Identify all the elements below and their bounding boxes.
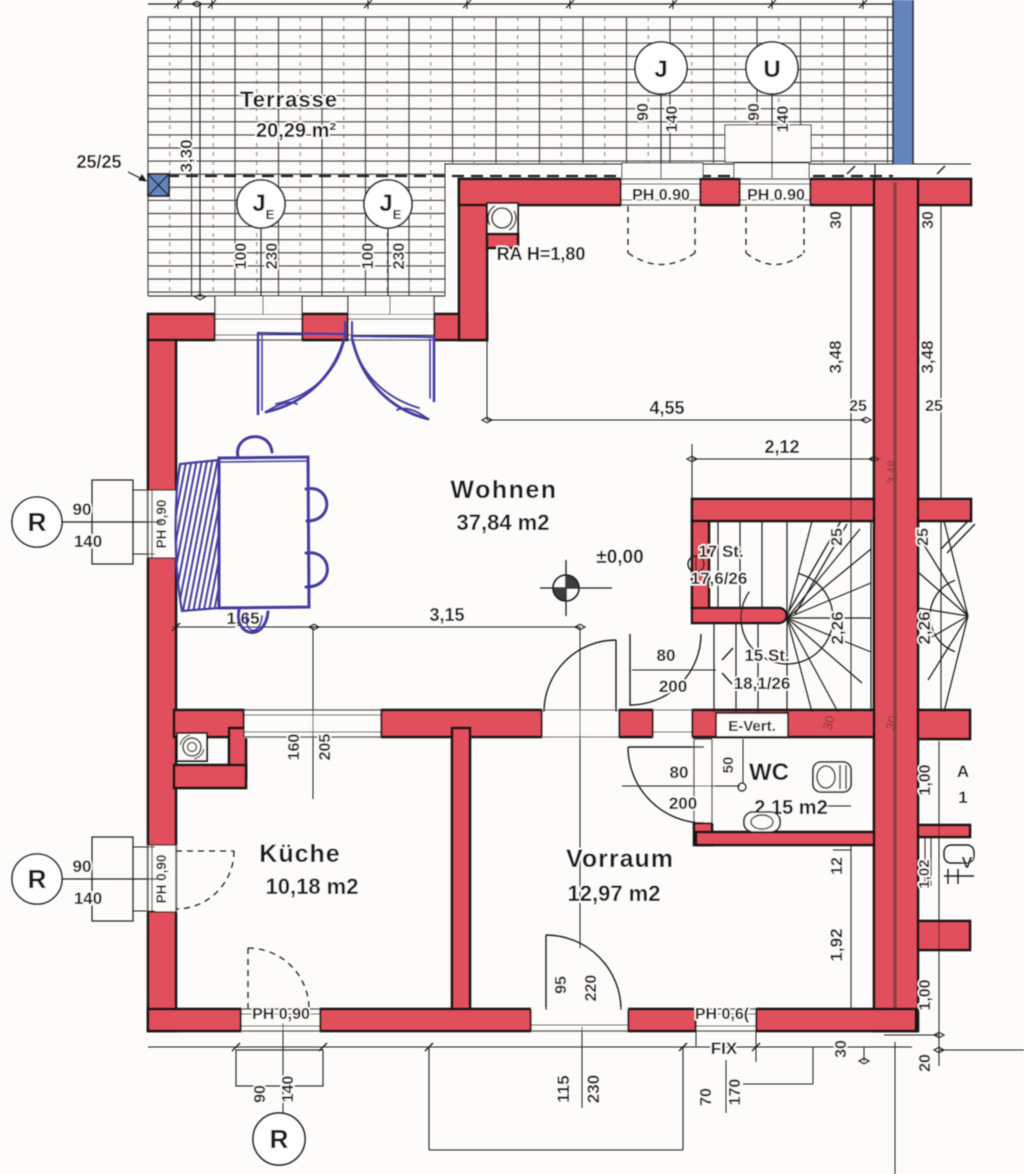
svg-text:1,00: 1,00 (917, 764, 934, 795)
svg-text:30: 30 (828, 211, 845, 229)
svg-text:3,48: 3,48 (885, 460, 899, 484)
svg-text:30: 30 (920, 211, 937, 229)
svg-text:J: J (252, 190, 265, 217)
svg-text:90: 90 (73, 500, 92, 519)
svg-text:1,00: 1,00 (917, 979, 934, 1010)
svg-text:12: 12 (829, 857, 846, 875)
svg-text:1,02: 1,02 (916, 859, 933, 888)
svg-text:Wohnen: Wohnen (450, 476, 557, 504)
svg-text:20: 20 (917, 1054, 934, 1072)
svg-text:R: R (270, 1124, 289, 1154)
svg-text:2,12: 2,12 (764, 437, 799, 457)
svg-text:90: 90 (73, 857, 92, 876)
svg-text:Küche: Küche (259, 840, 340, 868)
svg-text:160: 160 (286, 734, 303, 761)
svg-text:70: 70 (698, 1088, 715, 1106)
svg-text:220: 220 (583, 975, 600, 1002)
svg-text:20,29 m²: 20,29 m² (256, 120, 336, 142)
svg-text:100: 100 (360, 243, 377, 270)
svg-text:15 St.: 15 St. (744, 646, 789, 665)
svg-text:200: 200 (669, 794, 697, 813)
svg-text:115: 115 (554, 1075, 573, 1102)
svg-text:140: 140 (280, 1076, 297, 1103)
svg-text:R: R (28, 507, 47, 537)
svg-text:37,84 m2: 37,84 m2 (457, 510, 550, 535)
svg-text:12,97 m2: 12,97 m2 (568, 881, 661, 906)
svg-text:80: 80 (657, 646, 676, 665)
svg-text:FIX: FIX (711, 1039, 738, 1058)
svg-text:PH 0.90: PH 0.90 (747, 187, 805, 204)
svg-text:E: E (393, 207, 402, 222)
svg-text:10,18 m2: 10,18 m2 (266, 874, 359, 899)
svg-text:230: 230 (391, 243, 408, 270)
svg-text:80: 80 (670, 763, 689, 782)
svg-text:3,15: 3,15 (429, 605, 464, 625)
svg-text:1,65: 1,65 (226, 609, 259, 628)
svg-text:E-Vert.: E-Vert. (728, 718, 776, 735)
svg-text:140: 140 (74, 532, 102, 551)
svg-text:230: 230 (264, 243, 281, 270)
svg-text:18,1/26: 18,1/26 (734, 674, 791, 693)
svg-text:RA H=1,80: RA H=1,80 (497, 244, 586, 264)
svg-text:J: J (654, 56, 667, 83)
svg-text:200: 200 (659, 677, 687, 696)
svg-text:170: 170 (727, 1079, 744, 1106)
svg-text:25/25: 25/25 (76, 152, 121, 172)
svg-text:PH 0.90: PH 0.90 (632, 187, 690, 204)
svg-text:PH 0,90: PH 0,90 (252, 1006, 310, 1023)
svg-text:R: R (28, 864, 47, 894)
svg-text:230: 230 (584, 1075, 603, 1103)
svg-text:25: 25 (915, 528, 932, 546)
svg-text:140: 140 (74, 889, 102, 908)
svg-text:3,30: 3,30 (177, 139, 196, 172)
svg-text:30: 30 (833, 1040, 850, 1058)
svg-text:2,26: 2,26 (915, 611, 934, 644)
svg-text:140: 140 (664, 106, 681, 133)
svg-text:A: A (957, 762, 969, 781)
svg-text:3,48: 3,48 (918, 340, 937, 373)
svg-text:1: 1 (958, 788, 967, 807)
svg-text:Terrasse: Terrasse (240, 87, 338, 112)
svg-text:17,6/26: 17,6/26 (691, 569, 748, 588)
svg-text:PH 0,90: PH 0,90 (154, 500, 169, 549)
svg-text:90: 90 (252, 1085, 269, 1103)
svg-text:100: 100 (233, 243, 250, 270)
svg-text:90: 90 (635, 103, 652, 121)
svg-text:25: 25 (829, 528, 846, 546)
svg-text:±0,00: ±0,00 (596, 547, 643, 568)
svg-text:25: 25 (849, 398, 867, 415)
svg-text:95: 95 (553, 976, 570, 994)
svg-text:2,26: 2,26 (828, 611, 847, 644)
svg-text:50: 50 (720, 757, 737, 774)
svg-text:E: E (266, 207, 275, 222)
svg-text:J: J (379, 190, 392, 217)
svg-text:25: 25 (925, 398, 943, 415)
svg-text:1,92: 1,92 (827, 928, 846, 961)
svg-text:U: U (763, 56, 780, 83)
svg-text:3,48: 3,48 (826, 340, 845, 373)
svg-text:4,55: 4,55 (649, 398, 684, 418)
svg-text:WC: WC (749, 759, 789, 786)
svg-text:17 St.: 17 St. (698, 542, 743, 561)
svg-text:140: 140 (775, 106, 792, 133)
svg-text:205: 205 (317, 734, 334, 761)
svg-text:PH 0,6(: PH 0,6( (695, 1006, 750, 1023)
svg-text:Vorraum: Vorraum (566, 845, 674, 873)
svg-text:90: 90 (746, 103, 763, 121)
